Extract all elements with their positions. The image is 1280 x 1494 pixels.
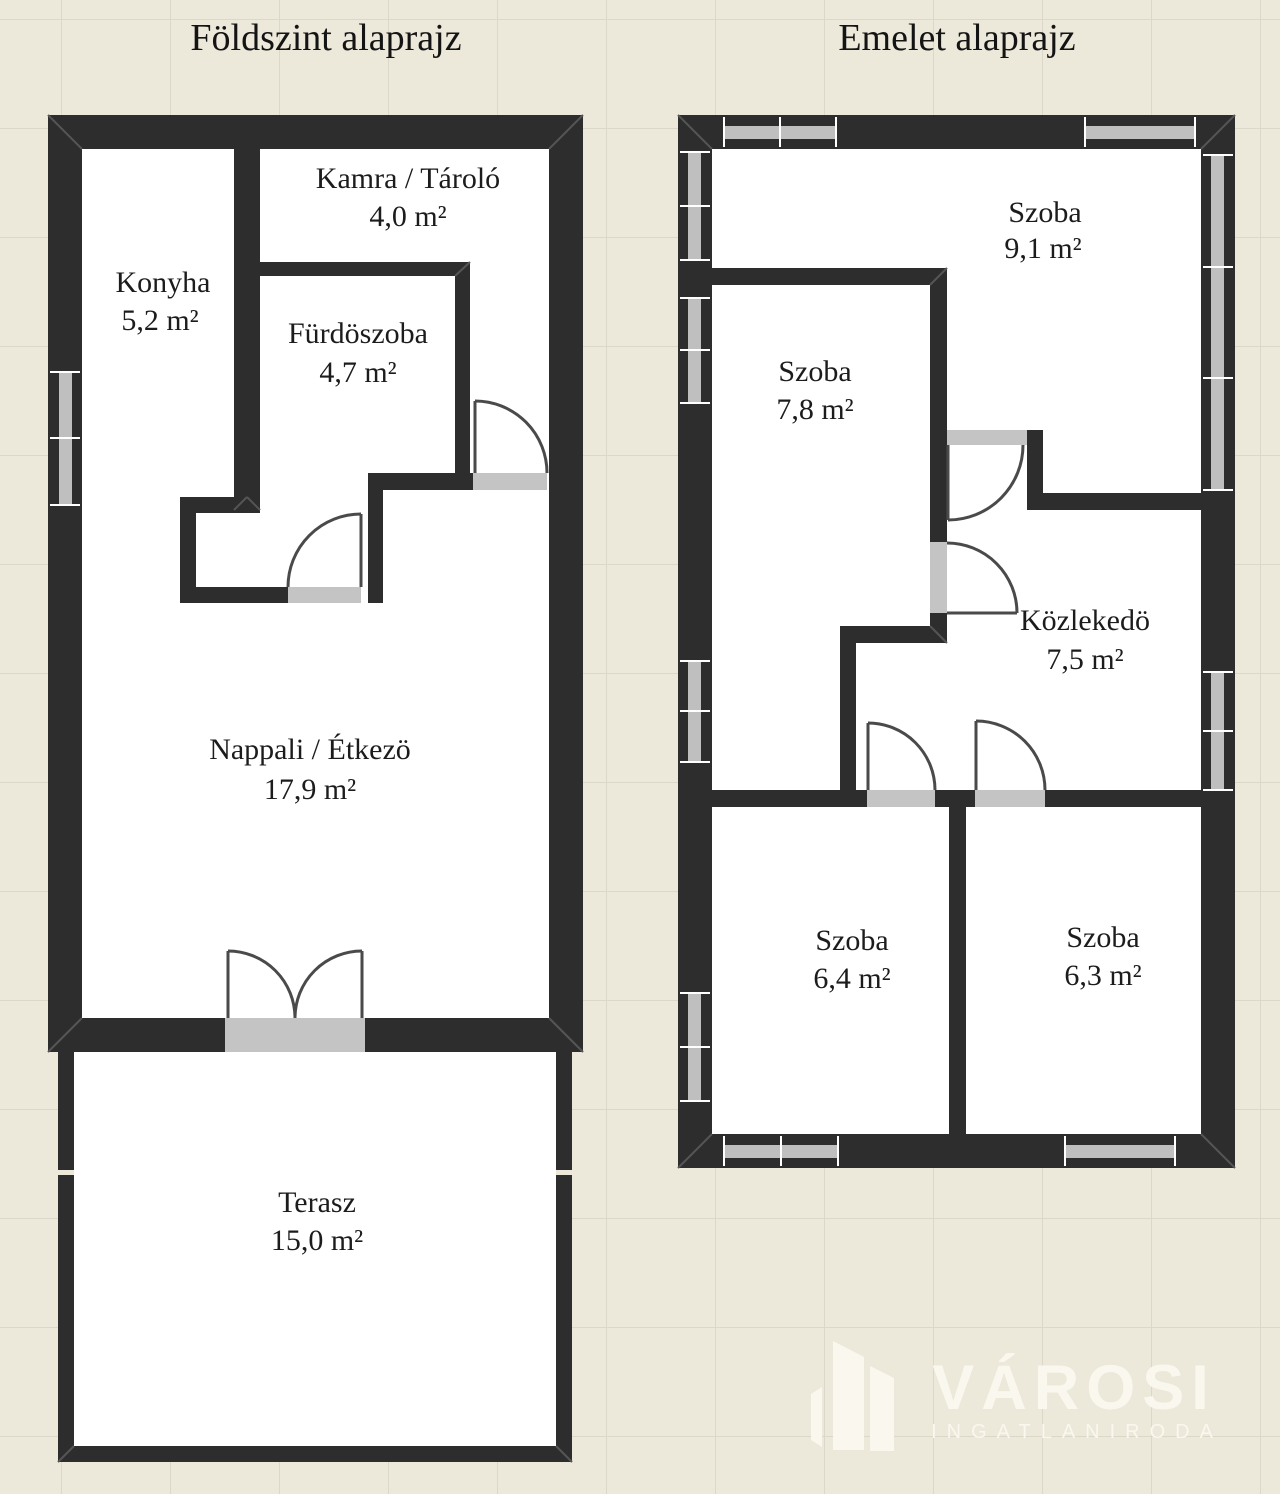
window-pane (1211, 155, 1224, 490)
wall (712, 268, 947, 285)
logo-building-shape (811, 1387, 822, 1447)
door-threshold (867, 790, 935, 807)
wall (234, 149, 260, 510)
wall (935, 790, 975, 807)
room-area: 7,8 m² (776, 393, 853, 426)
wall (180, 587, 288, 603)
wall (556, 1052, 572, 1462)
room-area: 9,1 m² (1004, 232, 1081, 265)
wall (1043, 493, 1201, 510)
wall (712, 790, 867, 807)
double-door-threshold (225, 1018, 365, 1052)
logo-brand-text: VÁROSI (932, 1353, 1216, 1423)
room-area: 15,0 m² (271, 1224, 363, 1257)
agency-logo-icon (811, 1341, 894, 1451)
door-threshold (975, 790, 1045, 807)
room-name: Terasz (278, 1186, 356, 1219)
room-name: Szoba (1008, 196, 1081, 229)
wall (260, 262, 470, 276)
logo-building-shape (833, 1341, 864, 1450)
room-area: 4,0 m² (369, 200, 446, 233)
wall (368, 473, 383, 603)
floorplan-drawing: Földszint alaprajz (0, 0, 1280, 1494)
room-area: 17,9 m² (264, 773, 356, 806)
room-area: 5,2 m² (121, 304, 198, 337)
door-threshold (288, 587, 361, 603)
wall (58, 1446, 572, 1462)
ground-floor-plan: Földszint alaprajz (48, 17, 583, 1462)
agency-logo: VÁROSI INGATLANIRODA (811, 1341, 1223, 1451)
floorplan-image: Földszint alaprajz (0, 0, 1280, 1494)
window-pane (1065, 1145, 1175, 1158)
room-area: 4,7 m² (319, 356, 396, 389)
window-pane (1085, 126, 1195, 139)
room-area: 7,5 m² (1046, 643, 1123, 676)
wall (840, 626, 856, 807)
wall (949, 807, 966, 1134)
wall (48, 115, 583, 149)
ground-floor-title: Földszint alaprajz (190, 17, 461, 59)
door-threshold (947, 430, 1027, 445)
wall (48, 115, 82, 1052)
room-name: Nappali / Étkezö (209, 733, 411, 766)
wall-break (556, 1170, 572, 1175)
wall (455, 276, 470, 473)
door-threshold (930, 542, 947, 613)
wall (840, 626, 947, 643)
room-area: 6,4 m² (813, 962, 890, 995)
room-area: 6,3 m² (1064, 959, 1141, 992)
room-name: Szoba (1066, 921, 1139, 954)
room-name: Szoba (778, 355, 851, 388)
upper-floor-title: Emelet alaprajz (838, 17, 1075, 59)
wall-break (58, 1170, 74, 1175)
wall (58, 1052, 74, 1462)
wall (1045, 790, 1201, 807)
wall (930, 268, 947, 542)
upper-floor-plan: Emelet alaprajz (678, 17, 1235, 1168)
room-name: Fürdöszoba (288, 317, 428, 350)
logo-subtitle-text: INGATLANIRODA (931, 1421, 1223, 1443)
wall (1027, 430, 1043, 510)
wall (383, 473, 473, 490)
room-name: Szoba (815, 924, 888, 957)
room-name: Konyha (116, 266, 211, 299)
door-threshold (473, 473, 547, 490)
logo-building-shape (870, 1366, 894, 1451)
wall (549, 115, 583, 1052)
room-name: Közlekedö (1020, 604, 1150, 637)
room-name: Kamra / Tároló (316, 162, 500, 195)
